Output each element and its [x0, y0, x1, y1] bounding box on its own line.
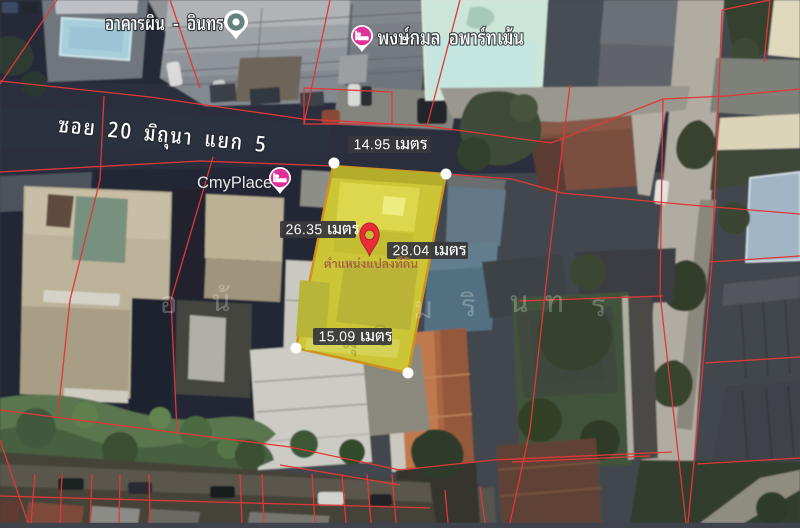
svg-text:CmyPlace: CmyPlace — [197, 174, 272, 192]
